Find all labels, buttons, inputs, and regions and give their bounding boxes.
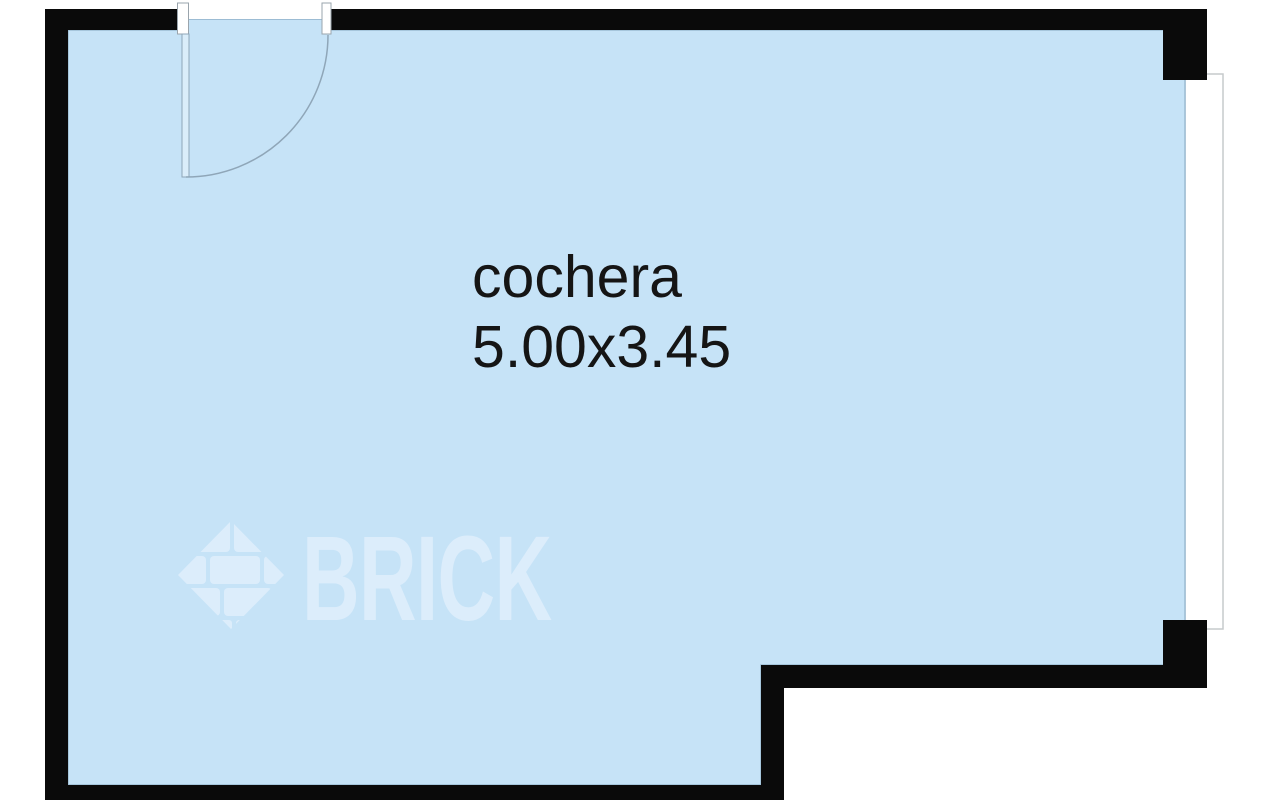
wall-left	[45, 9, 68, 800]
room-name-label: cochera	[472, 244, 682, 310]
wall-bottom-right	[761, 665, 1207, 688]
floor-plan: BRICK cochera 5.00x3.45	[0, 0, 1280, 800]
wall-top-right-segment	[328, 9, 1207, 30]
column-top-right	[1163, 9, 1207, 80]
brick-wordmark: BRICK	[302, 510, 552, 646]
right-opening-outline	[1185, 74, 1223, 629]
wall-bottom	[45, 785, 784, 800]
door-jamb-left	[178, 3, 189, 34]
floor-plan-drawing: BRICK cochera 5.00x3.45	[0, 0, 1280, 800]
door-leaf	[182, 34, 189, 177]
room-dimensions-label: 5.00x3.45	[472, 314, 731, 380]
column-bottom-right	[1163, 620, 1207, 688]
door-threshold-floor	[189, 19, 323, 32]
door-jamb-right	[322, 3, 331, 34]
